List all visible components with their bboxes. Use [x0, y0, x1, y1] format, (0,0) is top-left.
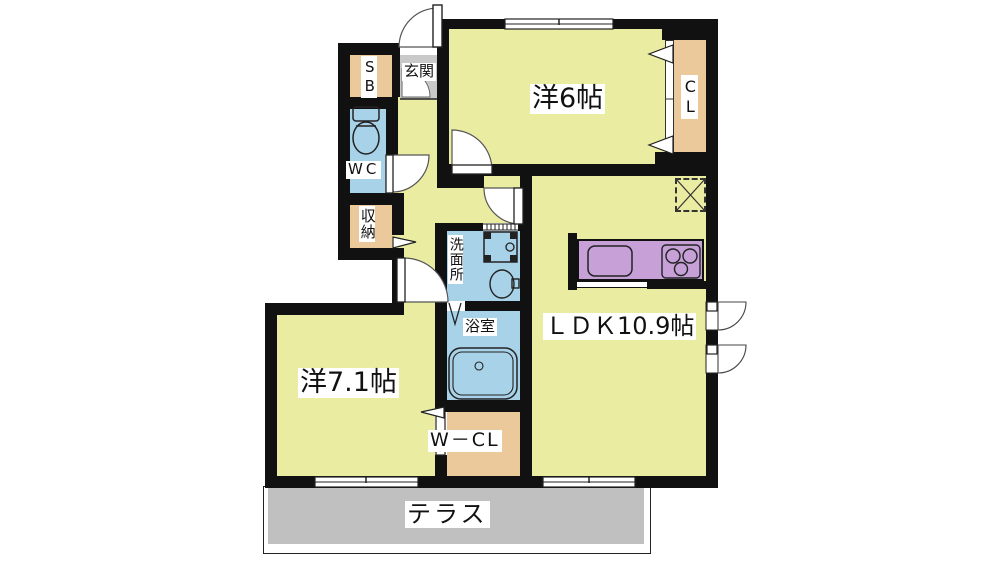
washing-machine-pan-icon	[484, 232, 517, 262]
storage-door-leaf	[393, 237, 416, 248]
closet-door-leaves	[649, 45, 674, 154]
sliding-window-ldk	[543, 477, 635, 487]
label-ldk: ＬＤＫ10.9帖	[543, 313, 696, 340]
label-west71: 洋7.1帖	[298, 368, 399, 398]
label-genkan: 玄関	[402, 63, 436, 81]
stove-icon	[662, 245, 700, 278]
label-wcl: W－CL	[428, 430, 502, 452]
refrigerator-cross-icon	[676, 179, 705, 211]
label-west6: 洋6帖	[530, 84, 605, 114]
label-cl: CL	[681, 75, 698, 119]
casement-window-upper	[706, 302, 746, 330]
casement-window-lower	[706, 345, 746, 373]
sliding-window-top	[505, 19, 613, 29]
label-storage: 収納	[359, 206, 375, 242]
washroom-accordion-door	[483, 224, 518, 230]
label-terrace: テラス	[405, 501, 490, 528]
kitchen-sink-icon	[588, 246, 632, 276]
bathtub-icon	[449, 348, 517, 399]
symbols-overlay	[0, 0, 1000, 562]
floor-plan: 洋6帖 CL SB 玄関 WC 収納 洗面所 浴室 W－CL ＬＤＫ10.9帖 …	[0, 0, 1000, 562]
toilet-icon	[353, 107, 379, 154]
label-bath: 浴室	[463, 318, 497, 336]
ldk-door-swing	[484, 188, 523, 224]
label-washroom: 洗面所	[448, 235, 463, 284]
wc-door-swing	[386, 155, 429, 193]
wash-basin-icon	[490, 270, 519, 298]
label-sb: SB	[361, 56, 377, 98]
label-wc: WC	[346, 161, 381, 179]
bath-folding-door	[449, 303, 461, 324]
sliding-window-west71	[315, 477, 418, 487]
west6-door-swing	[452, 130, 492, 174]
west71-door-swing	[397, 258, 448, 302]
front-door-swing	[399, 5, 442, 47]
